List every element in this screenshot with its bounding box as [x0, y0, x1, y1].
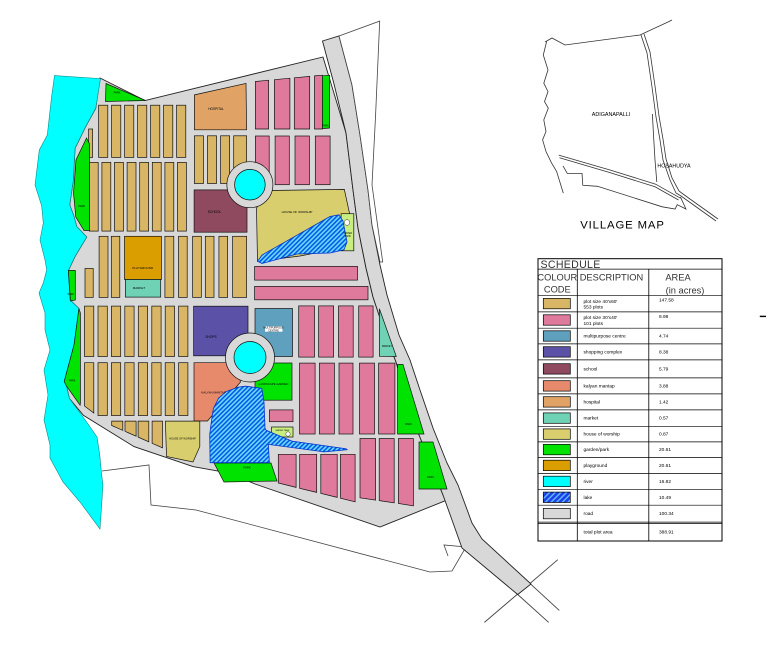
svg-text:MARKET: MARKET — [133, 286, 146, 290]
svg-text:388.91: 388.91 — [659, 530, 674, 536]
svg-text:3.88: 3.88 — [659, 384, 669, 390]
svg-text:20.61: 20.61 — [659, 447, 671, 453]
svg-text:SCHOOL: SCHOOL — [208, 210, 222, 214]
svg-text:MARKET: MARKET — [382, 345, 393, 348]
svg-text:HOSAHUDYA: HOSAHUDYA — [657, 164, 691, 170]
svg-text:100.34: 100.34 — [659, 511, 674, 517]
svg-text:HOUSE OF WORSHIP: HOUSE OF WORSHIP — [282, 210, 313, 214]
svg-text:hospital: hospital — [584, 400, 601, 406]
svg-text:garden/park: garden/park — [584, 447, 610, 453]
svg-text:20.61: 20.61 — [659, 463, 671, 469]
svg-text:101 plots: 101 plots — [584, 321, 604, 327]
svg-text:TANK: TANK — [345, 235, 352, 238]
svg-text:school: school — [584, 367, 598, 373]
svg-text:PARK: PARK — [405, 422, 412, 426]
svg-text:DESCRIPTION: DESCRIPTION — [580, 272, 644, 282]
svg-text:playground: playground — [584, 463, 608, 469]
svg-text:plot size 40'x60': plot size 40'x60' — [584, 299, 618, 305]
svg-text:PARK: PARK — [114, 91, 121, 95]
svg-text:VILLAGE MAP: VILLAGE MAP — [580, 220, 665, 232]
svg-text:KALYAN MANTAP: KALYAN MANTAP — [201, 391, 226, 395]
svg-text:WATER TANK: WATER TANK — [276, 429, 290, 432]
svg-text:shopping complex: shopping complex — [584, 350, 623, 356]
svg-text:147.58: 147.58 — [659, 298, 674, 304]
svg-text:(in acres): (in acres) — [666, 285, 705, 295]
svg-text:total plot area: total plot area — [584, 530, 613, 536]
svg-text:kalyan mantap: kalyan mantap — [584, 384, 616, 390]
svg-text:AREA: AREA — [665, 272, 691, 282]
svg-text:COLOUR: COLOUR — [537, 272, 577, 282]
svg-text:8.98: 8.98 — [659, 314, 669, 320]
svg-text:lake: lake — [584, 495, 593, 501]
svg-text:multipurpose centre: multipurpose centre — [584, 334, 626, 340]
svg-text:ADIGANAPALLI: ADIGANAPALLI — [592, 112, 631, 118]
svg-text:road: road — [584, 511, 594, 517]
svg-text:HOSPITAL: HOSPITAL — [208, 107, 224, 111]
svg-text:house of worship: house of worship — [584, 432, 621, 438]
svg-text:SHOPS: SHOPS — [205, 335, 216, 339]
svg-text:0.57: 0.57 — [659, 416, 669, 422]
svg-text:river: river — [584, 479, 594, 485]
svg-text:553 plots: 553 plots — [584, 304, 604, 310]
svg-text:1.42: 1.42 — [659, 400, 669, 406]
svg-text:LANDSCAPE GARDEN: LANDSCAPE GARDEN — [259, 382, 289, 386]
svg-text:4.74: 4.74 — [659, 334, 669, 340]
svg-text:plot size 30'x40': plot size 30'x40' — [584, 315, 618, 321]
svg-text:CENTRE: CENTRE — [268, 329, 279, 333]
svg-text:5.79: 5.79 — [659, 367, 669, 373]
svg-text:16.82: 16.82 — [659, 479, 671, 485]
svg-text:8.38: 8.38 — [659, 350, 669, 356]
svg-text:PARK: PARK — [243, 466, 251, 470]
svg-text:PARK: PARK — [69, 380, 76, 383]
svg-text:PARK: PARK — [78, 204, 85, 208]
svg-text:market: market — [584, 416, 599, 422]
svg-text:0.87: 0.87 — [659, 432, 669, 438]
svg-text:HOUSE OF WORSHIP: HOUSE OF WORSHIP — [169, 437, 196, 441]
svg-text:PARK: PARK — [323, 125, 330, 128]
svg-text:PARK: PARK — [68, 293, 75, 296]
svg-text:PARK: PARK — [427, 475, 434, 479]
svg-text:CODE: CODE — [544, 284, 571, 294]
svg-text:PLAYGROUND: PLAYGROUND — [132, 266, 154, 270]
svg-text:10.49: 10.49 — [659, 495, 671, 501]
